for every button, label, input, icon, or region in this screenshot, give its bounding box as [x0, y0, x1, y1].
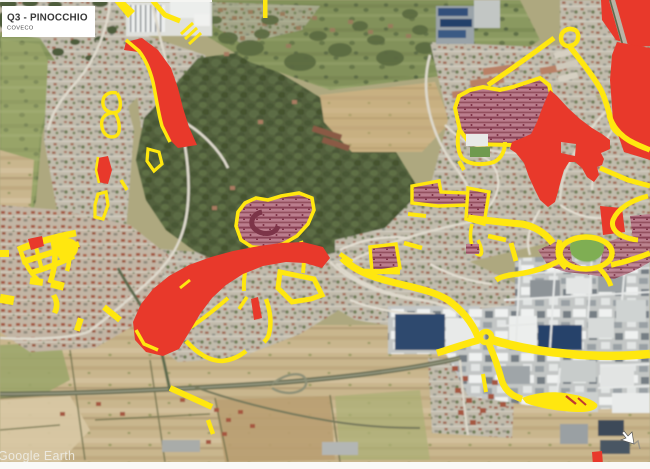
svg-text:Q3 - PINOCCHIO: Q3 - PINOCCHIO: [7, 13, 88, 24]
svg-text:COVECO: COVECO: [7, 26, 34, 32]
svg-text:Google Earth: Google Earth: [0, 449, 75, 463]
